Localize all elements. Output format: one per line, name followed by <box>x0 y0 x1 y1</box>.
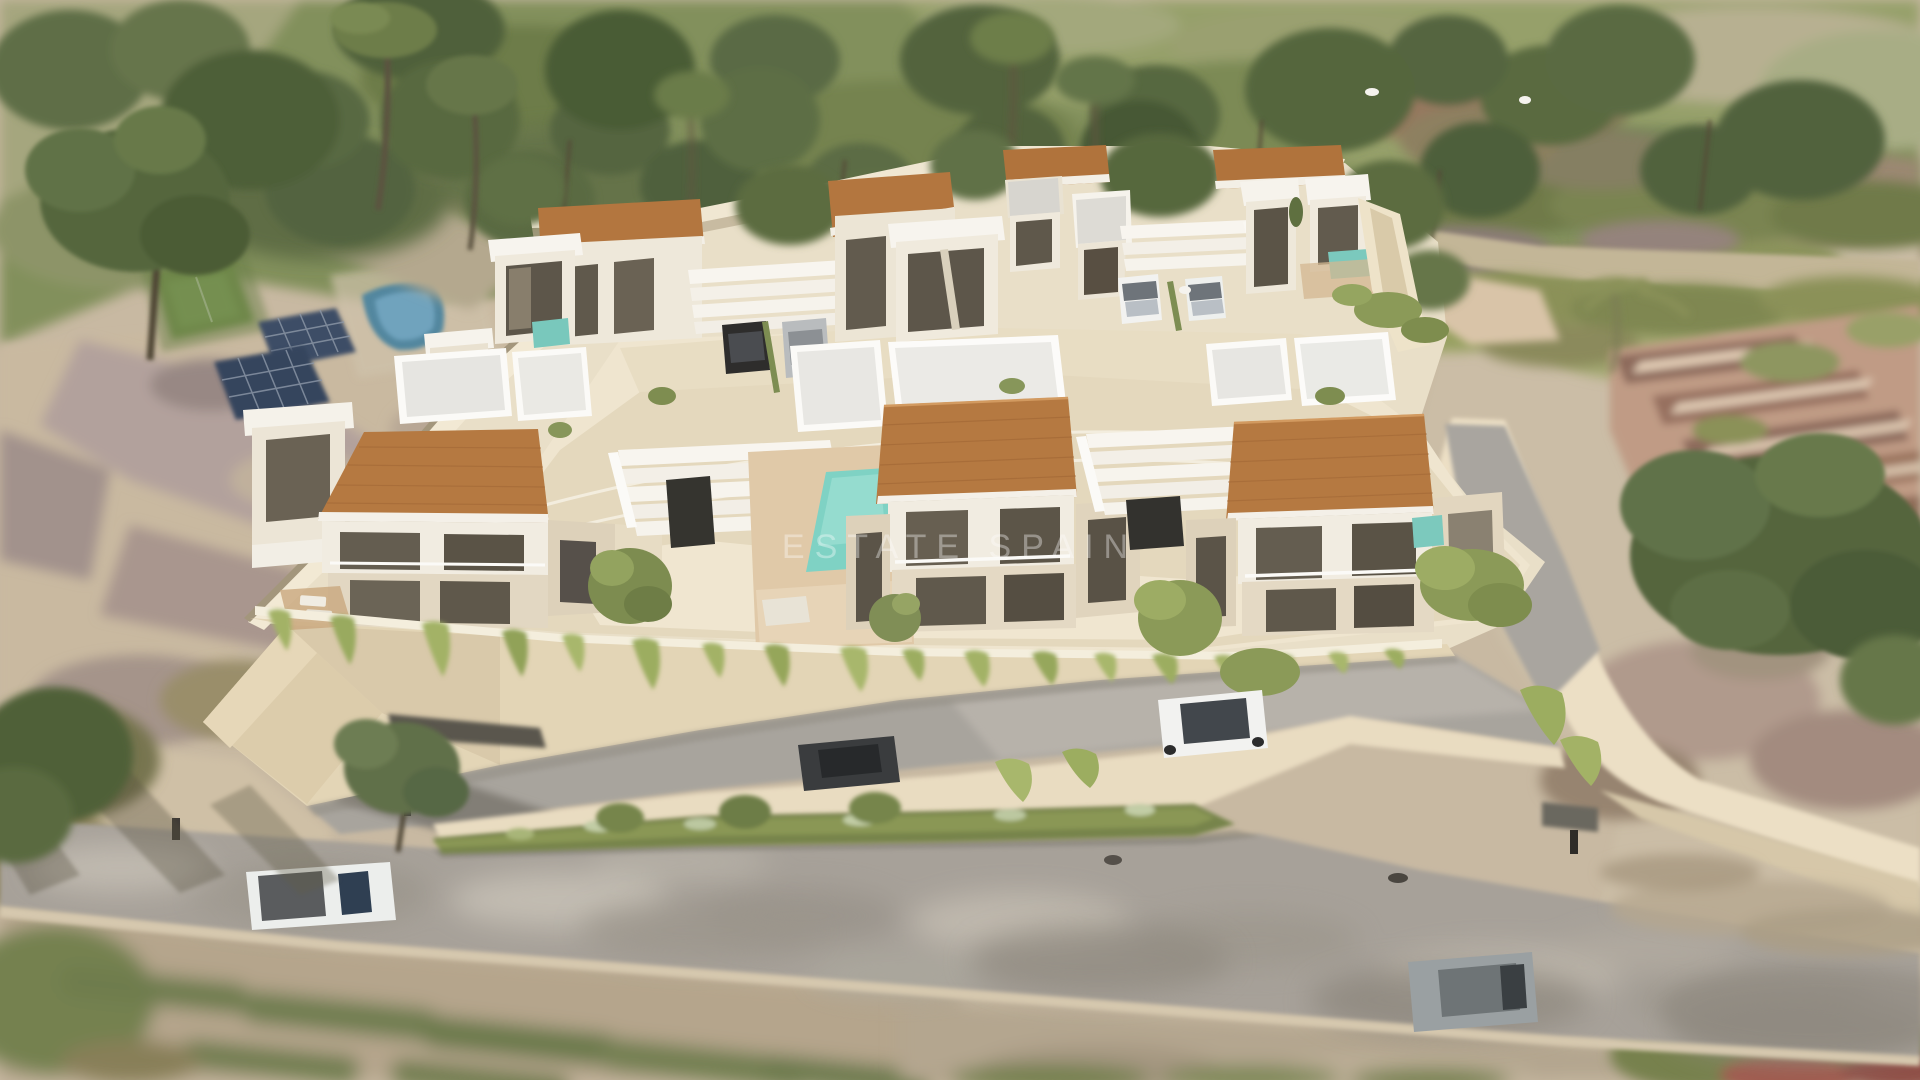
svg-text:ESTATE SPAIN: ESTATE SPAIN <box>782 528 1138 566</box>
